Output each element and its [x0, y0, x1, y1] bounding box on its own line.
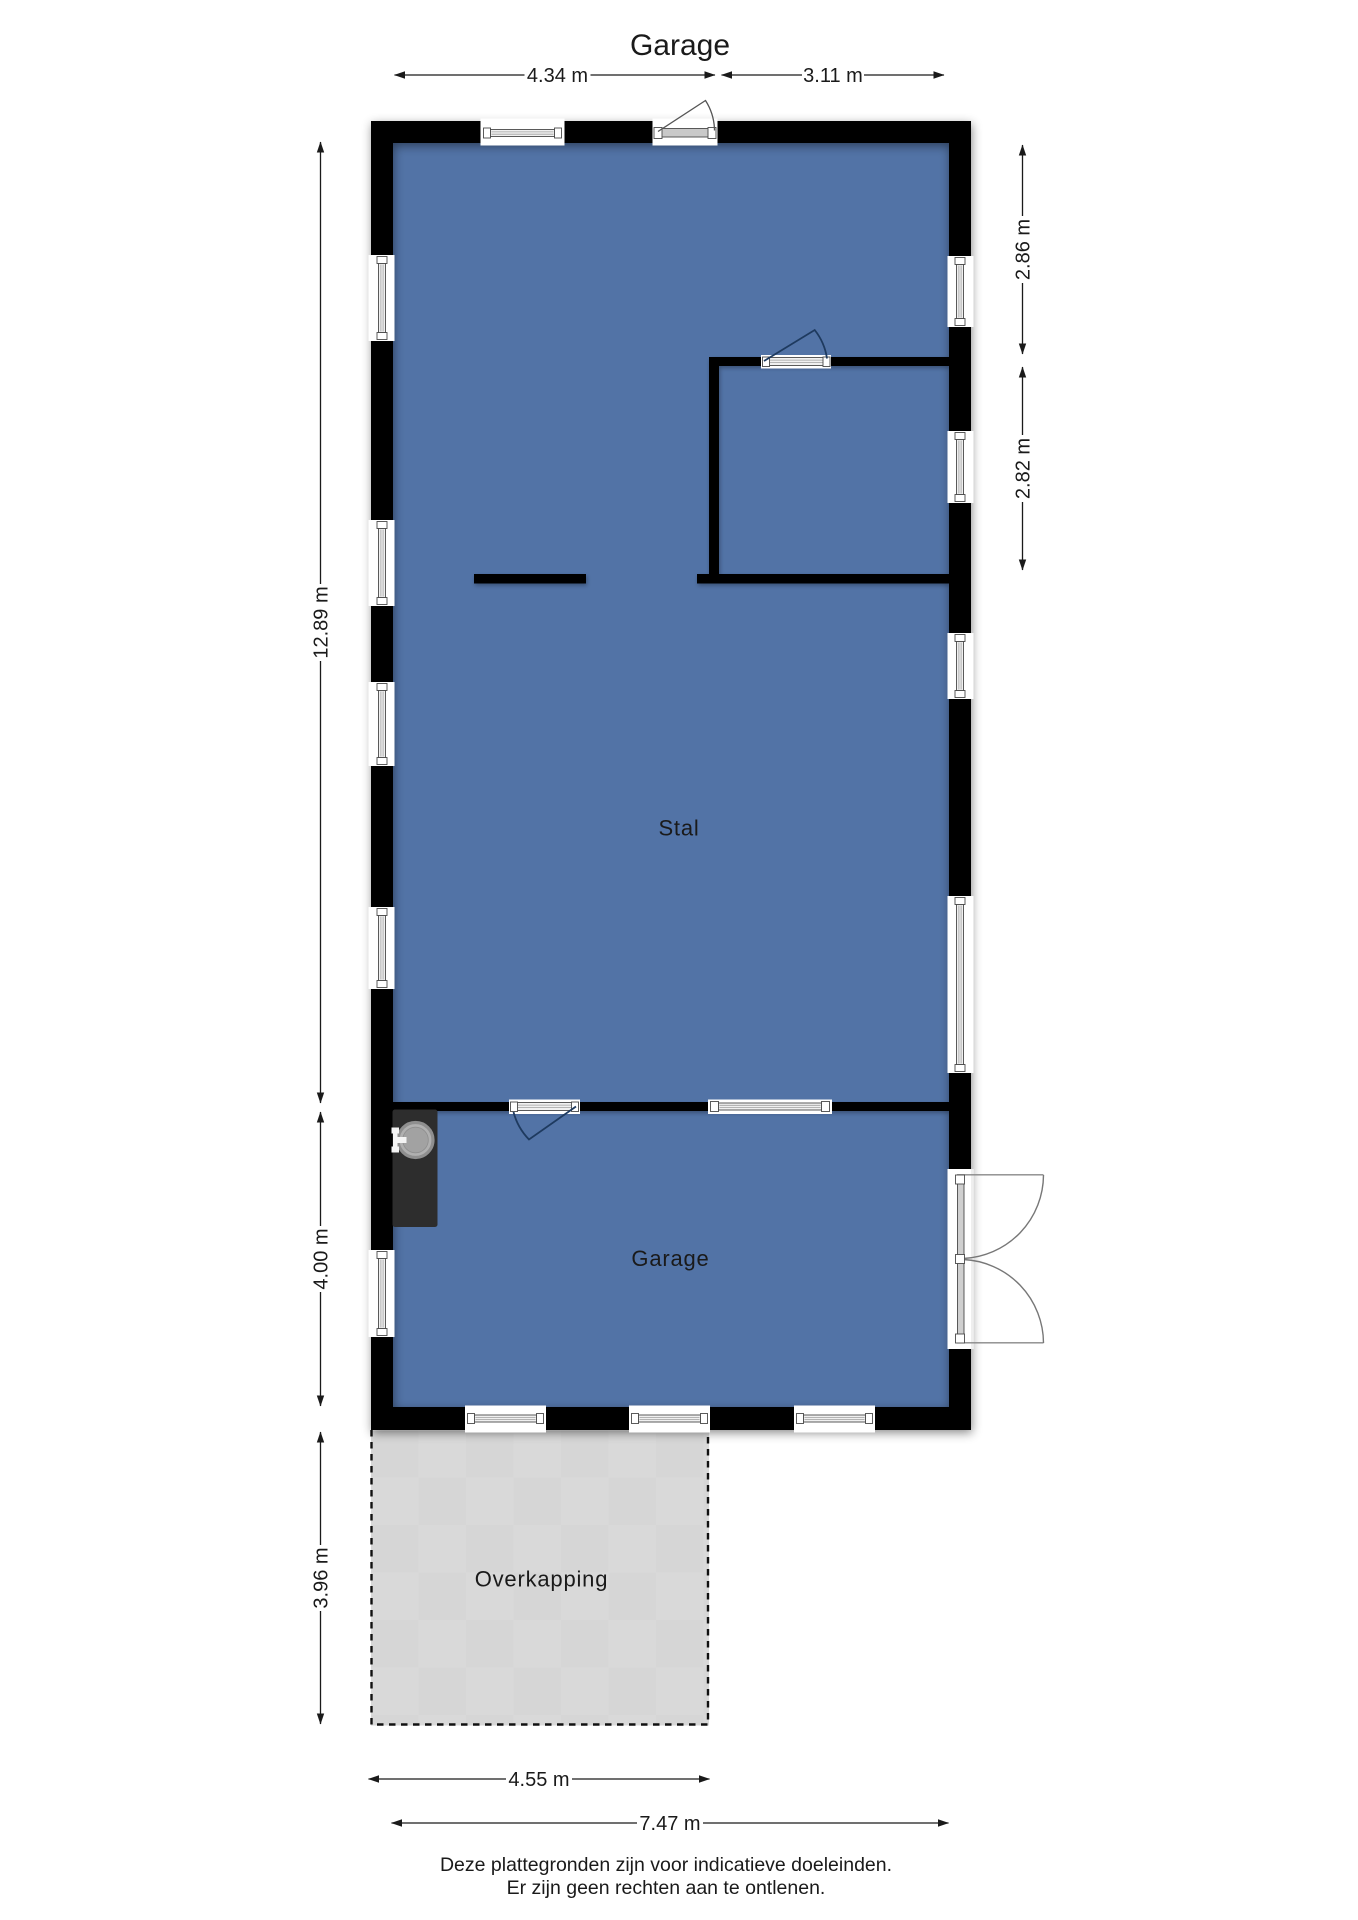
- svg-text:Er zijn geen rechten aan te on: Er zijn geen rechten aan te ontlenen.: [507, 1877, 826, 1899]
- svg-text:Garage: Garage: [630, 29, 730, 62]
- svg-text:7.47 m: 7.47 m: [639, 1813, 700, 1835]
- svg-text:12.89 m: 12.89 m: [311, 586, 333, 658]
- svg-text:2.82 m: 2.82 m: [1013, 438, 1035, 499]
- svg-text:Garage: Garage: [631, 1246, 709, 1271]
- svg-text:Overkapping: Overkapping: [475, 1567, 609, 1592]
- svg-text:Deze plattegronden zijn voor i: Deze plattegronden zijn voor indicatieve…: [440, 1854, 892, 1876]
- svg-text:4.55 m: 4.55 m: [508, 1769, 569, 1791]
- svg-text:2.86 m: 2.86 m: [1013, 219, 1035, 280]
- svg-text:3.96 m: 3.96 m: [311, 1547, 333, 1608]
- svg-text:Stal: Stal: [658, 816, 699, 841]
- svg-text:3.11 m: 3.11 m: [803, 65, 863, 87]
- svg-text:4.34 m: 4.34 m: [527, 65, 588, 87]
- svg-text:4.00 m: 4.00 m: [311, 1228, 333, 1289]
